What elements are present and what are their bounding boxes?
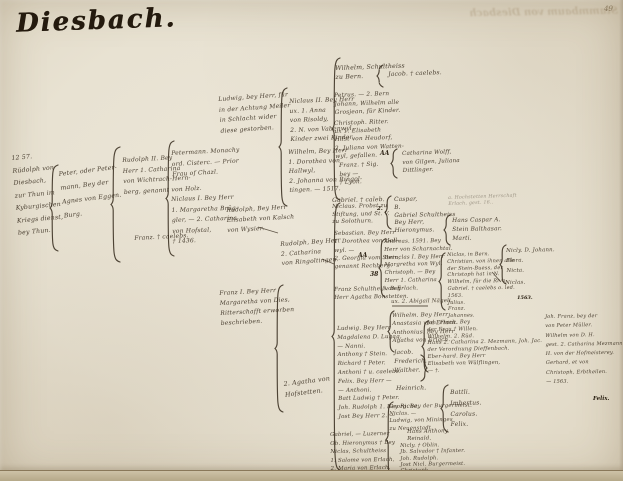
manuscript-page: Diesbach. 49 Stammbaum von Diesbach 12 5… (0, 0, 623, 481)
tree-node-hochstetten-faint: a. Hochstetten HerrschaftErlach, gest. 1… (448, 194, 517, 208)
bleed-through-text: Stammbaum von Diesbach (468, 6, 618, 20)
tree-node-line: Grosjean, für Kinder. (335, 107, 401, 118)
tree-node-line: Niclas. (505, 279, 525, 288)
tree-node-hans-anthony: Hans Anthony.Reinald. (407, 428, 449, 442)
annotation-mark: AA (358, 252, 367, 259)
tree-node-line: Nicta. (506, 265, 555, 276)
tree-node-hans-caspar: Hans Caspar A.Stein Balthasar.Marti. (452, 216, 502, 244)
tree-node-line: Johannes. (448, 312, 515, 320)
tree-node-line: von Erlach. (385, 285, 454, 294)
page-bottom-edge (0, 470, 623, 481)
tree-node-line: Frederich. (394, 357, 427, 366)
tree-node-battli-group: Battli.Imbertus.Carolus.Felix. (450, 387, 482, 431)
tree-node-christoph-ritter: Christoph. Ritter.ux 1. ElisabethHilst v… (334, 118, 404, 161)
annotation-mark: 2. (377, 206, 383, 212)
tree-node-abigail-naegeli: ux. 2. Abigail Nägeli. (391, 298, 453, 306)
tree-node-line: von Wysier. (227, 222, 295, 236)
page-title: Diesbach. (16, 3, 177, 39)
tree-node-line: Battli. (450, 387, 482, 398)
tree-node-nicly-johann: Nicly. D. Johann.Flora.Nicta. (506, 245, 555, 276)
page-right-edge-shadow (619, 0, 623, 481)
tree-node-jacob-caelebs: Jacob. † caelebs. (388, 68, 442, 79)
tree-node-line: Imbertus. (450, 398, 482, 409)
tree-node-line: Carolus. (450, 409, 482, 420)
tree-node-line: Felix. (451, 420, 483, 431)
tree-node-caspar-group: Caspar,B.Gabriel SchultheissBey Herr,Hie… (394, 196, 456, 236)
tree-node-franz-i-ritter: Franz I. Bey HerrMargaretha von Dies,Rit… (219, 285, 295, 329)
tree-node-niclas-below: Niclas. (505, 279, 525, 288)
tree-node-line: bey Thun. (18, 224, 65, 240)
annotation-mark: 38 (370, 271, 378, 278)
tree-node-andreas-group: Andreas. 1591. BeyHerr von Scharnachtal.… (384, 238, 454, 294)
tree-node-peter-petermann: Peter, oder Peter-mann, Bey derAgnes von… (58, 161, 124, 224)
tree-node-rudolph-kalsch: Rudolph, Bey HerrElisabeth von Kalschvon… (226, 202, 295, 235)
tree-node-ludwig-schlacht: Ludwig, bey Herr, fürin der Achtung Meil… (218, 90, 292, 137)
tree-node-line: Gabriel Schultheiss (394, 212, 455, 221)
annotation-mark: AA (380, 150, 389, 157)
tree-node-agatha-hofstetten: 2. Agatha vonHofstetten. (283, 373, 332, 401)
tree-node-line: Hieronymus. (395, 227, 456, 236)
tree-node-line: Nicly. D. Johann. (506, 245, 555, 256)
tree-node-line: Dittlinger. (403, 165, 461, 176)
annotation-mark: Felix. (593, 396, 609, 402)
tree-node-line: Stein Balthasar. (452, 225, 502, 235)
tree-node-petermann-monachy: Petermann. Monachyord. Cisterc. — PriorF… (171, 145, 241, 180)
tree-node-rudolph-ringoltingen: Rudolph, Bey Herr2. Catharinavon Ringolt… (280, 236, 342, 269)
tree-node-line: Erlach, gest. 16.. (448, 200, 517, 208)
tree-node-line: zu Solothurn. (332, 218, 390, 227)
annotation-mark: 1563. (517, 295, 533, 301)
tree-node-line: Walther. (394, 366, 427, 375)
tree-node-line: — 1563. (546, 376, 623, 387)
tree-node-heinrich: Heinrich. (396, 383, 426, 393)
tree-node-root-rudolph-1257: 12 57.Rüdolph vonDiesbach,zur Thun imKyb… (11, 149, 65, 240)
tree-node-far-right-group: Joh. Franz, bey dervon Peter Müller.Wilh… (545, 311, 623, 387)
tree-node-franz-sig: Franz. † Sig.bey —† Lyon. (339, 161, 379, 188)
tree-node-line: † Lyon. (340, 178, 380, 188)
tree-node-line: Jacob. † caelebs. (388, 68, 442, 79)
tree-node-line: wyl, gefallen. (335, 150, 404, 161)
tree-node-line: † 1436. (172, 235, 239, 248)
tree-node-joh-franz-group: Joh. Franz. Beyder Frau † Willen.Wilhelm… (427, 318, 543, 374)
tree-node-catharina-wolff: Catharina Wolff,von Gilgen, JulianaDittl… (402, 148, 460, 175)
tree-node-line: Heinrich. (396, 383, 426, 393)
tree-node-line: Marti. (452, 234, 502, 244)
tree-node-line: Franz. † Sig. (339, 161, 379, 171)
tree-node-jacob-frederich-walther: Jacob.Frederich.Walther. (394, 348, 427, 375)
tree-node-line: ux. 2. Abigail Nägeli. (391, 298, 453, 306)
tree-node-gabriel-luzern-group: Gabriel, — LuzernerOb. Hieronymus † BeyN… (330, 430, 396, 474)
tree-node-line: Frau of Chazl. (172, 166, 241, 180)
tree-node-petrus-group: Petrus. — 2. BernJohann, Wilhelm alleGro… (334, 90, 401, 118)
